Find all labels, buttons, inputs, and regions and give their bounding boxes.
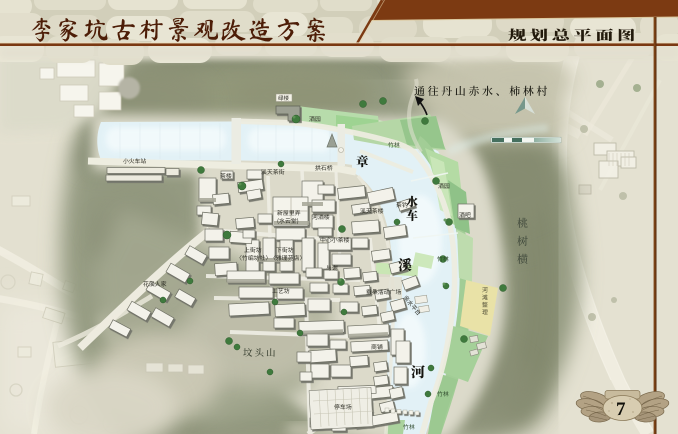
svg-text:7: 7 <box>616 399 626 420</box>
